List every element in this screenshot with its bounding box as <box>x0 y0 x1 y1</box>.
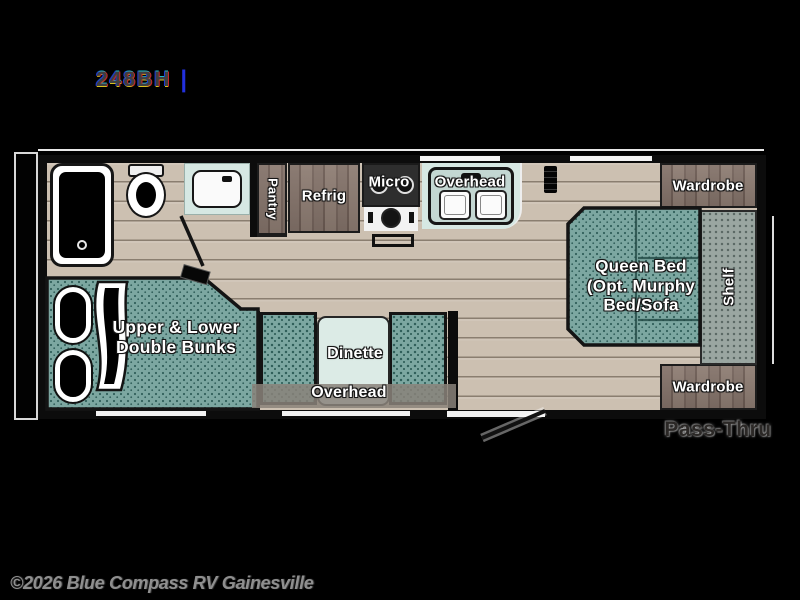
queen-bed-label-line3: Bed/Sofa <box>587 296 695 316</box>
queen-bed-label-line2: (Opt. Murphy <box>587 276 695 296</box>
bunks-label-line1: Upper & Lower <box>112 317 239 337</box>
toilet-bowl-inner <box>136 182 156 208</box>
kitchen-overhead-label: Overhead <box>435 173 506 190</box>
sink-basin-left <box>439 190 471 220</box>
window-top-kitchen <box>420 156 500 161</box>
stove-knob <box>368 212 373 223</box>
window-bottom-dinette <box>282 411 410 416</box>
window-top-bedroom <box>570 156 652 161</box>
bunks-label: Upper & Lower Double Bunks <box>112 317 239 357</box>
sink-basin-inner <box>480 195 502 215</box>
shower-fixture <box>50 163 114 267</box>
dinette-overhead-label: Overhead <box>311 384 386 402</box>
floorplan-screenshot: 248BH | <box>0 0 800 600</box>
toilet-fixture <box>126 172 166 218</box>
copyright-text: ©2026 Blue Compass RV Gainesville <box>10 573 314 594</box>
model-title-row: 248BH | <box>96 66 187 94</box>
dinette-label: Dinette <box>327 345 383 363</box>
window-bottom-bunks <box>96 411 206 416</box>
bunk-pillow-top <box>55 287 91 343</box>
roof-outline <box>38 149 764 151</box>
wall-mounted-bracket <box>544 166 557 193</box>
queen-bed-label-line1: Queen Bed <box>587 257 695 277</box>
front-cap-line <box>772 216 774 364</box>
shelf-label: Shelf <box>720 268 737 306</box>
pantry-label: Pantry <box>265 178 280 220</box>
entry-door-opening <box>447 411 545 417</box>
sink-basin-inner <box>444 195 466 215</box>
shower-drain <box>77 240 87 250</box>
stove-drawer <box>372 234 414 247</box>
stove-burner <box>381 208 401 228</box>
bunks-label-line2: Double Bunks <box>112 337 239 357</box>
refrig-label: Refrig <box>302 187 347 204</box>
bunk-pillow-bottom <box>55 350 91 402</box>
bathroom-wall <box>250 163 257 237</box>
wardrobe-bottom-label: Wardrobe <box>672 378 743 395</box>
stove-front <box>364 207 418 231</box>
model-number: 248BH <box>96 68 171 92</box>
shower-basin <box>59 172 105 258</box>
stove-knob <box>409 212 414 223</box>
queen-bed-label: Queen Bed (Opt. Murphy Bed/Sofa <box>587 257 695 316</box>
bathroom-faucet <box>222 176 232 182</box>
sink-basin-right <box>475 190 507 220</box>
micro-label: Micro <box>368 173 409 190</box>
rear-bumper <box>14 152 38 420</box>
wardrobe-top-label: Wardrobe <box>672 177 743 194</box>
bathroom-sink <box>192 170 242 208</box>
pass-thru-label: Pass-Thru <box>664 418 771 442</box>
title-separator: | <box>180 66 187 94</box>
